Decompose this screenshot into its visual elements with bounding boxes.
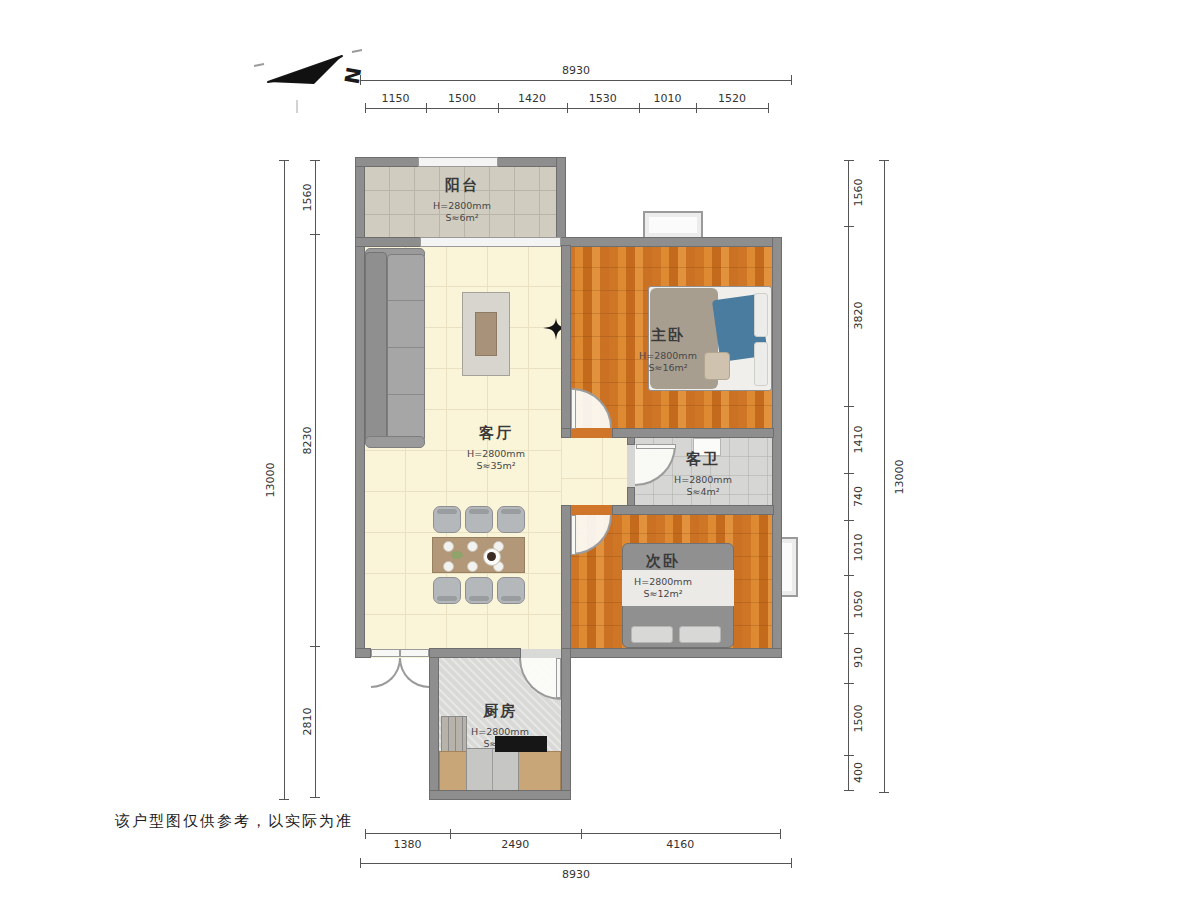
room-ceiling: H=2800mm — [593, 576, 733, 588]
room-ceiling: H=2800mm — [598, 350, 738, 362]
wall-master-top — [556, 237, 782, 247]
dining-chair — [433, 506, 461, 533]
dining-chair — [497, 577, 525, 604]
dim-value: 1050 — [849, 575, 867, 633]
dim-value: 1010 — [639, 92, 696, 108]
bathroom-door-leaf — [636, 444, 676, 449]
bathroom-label: 客卫 H=2800mm S≈4m² — [633, 450, 773, 498]
wall-balcony-bottom — [355, 237, 421, 247]
dim-value: 2810 — [299, 646, 315, 797]
wall-master-bottom — [612, 428, 774, 438]
room-name: 阳台 — [392, 176, 532, 195]
master-door-leaf — [571, 389, 576, 429]
north-arrow: N — [252, 36, 362, 118]
doorway-patch — [571, 428, 612, 438]
wall-living-second — [561, 505, 571, 658]
bed-pillow — [679, 626, 721, 643]
wall-living-bottom-stub — [355, 648, 371, 658]
wall-kitchen-bottom — [429, 790, 571, 800]
master-bedroom-label: 主卧 H=2800mm S≈16m² — [598, 326, 738, 374]
room-area: S≈16m² — [598, 362, 738, 374]
dim-top-total: 8930 — [360, 64, 792, 81]
sofa — [387, 254, 425, 442]
dim-value: 1530 — [567, 92, 639, 108]
doorway-patch — [571, 505, 612, 515]
room-area: S≈4m² — [633, 486, 773, 498]
dim-value: 910 — [849, 633, 867, 683]
dim-value: 1560 — [849, 160, 867, 226]
living-room-label: 客厅 H=2800mm S≈35m² — [426, 424, 566, 472]
dim-value: 8930 — [360, 64, 792, 77]
dim-value: 8230 — [299, 234, 315, 646]
dining-chair — [433, 577, 461, 604]
dining-chair — [465, 577, 493, 604]
wall-balcony-right — [556, 157, 566, 247]
bed-pillow — [631, 626, 673, 643]
dim-value: 1500 — [426, 92, 497, 108]
dim-value: 13000 — [264, 463, 277, 498]
room-ceiling: H=2800mm — [426, 448, 566, 460]
dim-value: 2490 — [450, 834, 581, 851]
room-area: S≈35m² — [426, 460, 566, 472]
range-hood — [495, 736, 547, 752]
room-name: 主卧 — [598, 326, 738, 345]
entry-door-swing — [399, 658, 429, 688]
dim-value: 1010 — [849, 520, 867, 575]
room-name: 次卧 — [593, 552, 733, 571]
dim-value: 1500 — [849, 683, 867, 755]
dim-value: 1380 — [365, 834, 450, 851]
dim-value: 4160 — [581, 834, 780, 851]
master-bay-window — [643, 211, 703, 239]
dim-left-total: 13000 — [284, 160, 285, 800]
dining-chair — [497, 506, 525, 533]
dim-right-total: 13000 — [884, 160, 885, 793]
wall-outer-left — [355, 157, 365, 658]
wall-kitchen-top — [429, 648, 521, 658]
floorplan-canvas: N — [0, 0, 1200, 900]
second-bedroom-label: 次卧 H=2800mm S≈12m² — [593, 552, 733, 600]
dim-value: 1410 — [849, 406, 867, 474]
doorway-patch — [521, 649, 561, 658]
north-arrow-icon: N — [252, 36, 362, 114]
wall-living-master — [561, 245, 571, 437]
dim-value: 3820 — [849, 226, 867, 406]
dim-value: 1560 — [299, 160, 315, 234]
dim-left-segments: 1560 8230 2810 — [299, 160, 316, 797]
room-name: 客卫 — [633, 450, 773, 469]
dim-top-segments: 1150 1500 1420 1530 1010 1520 — [365, 92, 768, 109]
dim-bottom-total: 8930 — [360, 863, 792, 881]
room-name: 厨房 — [430, 702, 570, 721]
living-room-floor-nook — [561, 437, 627, 506]
wall-outer-right — [772, 237, 782, 658]
wall-second-top — [612, 505, 774, 515]
dim-value: 13000 — [893, 459, 906, 494]
second-door-leaf — [571, 515, 576, 555]
bed-pillow — [754, 293, 768, 337]
balcony-label: 阳台 H=2800mm S≈6m² — [392, 176, 532, 224]
sofa-back — [365, 252, 387, 444]
dim-value: 1150 — [365, 92, 426, 108]
balcony-sliding-window — [420, 237, 561, 247]
room-area: S≈6m² — [392, 212, 532, 224]
dim-value: 1520 — [696, 92, 768, 108]
kitchen-door-leaf — [556, 658, 561, 698]
room-area: S≈12m² — [593, 588, 733, 600]
wall-second-bottom — [561, 648, 782, 658]
entry-door-swing — [371, 658, 401, 688]
room-name: 客厅 — [426, 424, 566, 443]
dim-value: 8930 — [360, 868, 792, 881]
bed-pillow — [754, 342, 768, 386]
dining-table — [432, 537, 525, 573]
dim-value: 740 — [849, 473, 867, 519]
dining-chair — [465, 506, 493, 533]
entry-door-leaf — [371, 649, 400, 657]
coffee-table-tray — [475, 312, 497, 356]
entry-door-leaf — [400, 649, 429, 657]
balcony-window — [418, 157, 498, 167]
refrigerator — [466, 748, 519, 795]
disclaimer-text: 该户型图仅供参考，以实际为准 — [115, 812, 353, 831]
dim-right-segments: 1560 3820 1410 740 1010 1050 910 1500 40… — [848, 160, 867, 790]
dim-bottom-segments: 1380 2490 4160 — [365, 833, 780, 851]
dim-value: 400 — [849, 755, 867, 790]
table-flowers — [451, 551, 463, 559]
dim-value: 1420 — [498, 92, 567, 108]
room-ceiling: H=2800mm — [392, 200, 532, 212]
wall-bath-left-stub — [627, 437, 635, 445]
room-ceiling: H=2800mm — [633, 474, 773, 486]
north-label: N — [339, 65, 362, 86]
sofa-armrest — [365, 436, 425, 448]
